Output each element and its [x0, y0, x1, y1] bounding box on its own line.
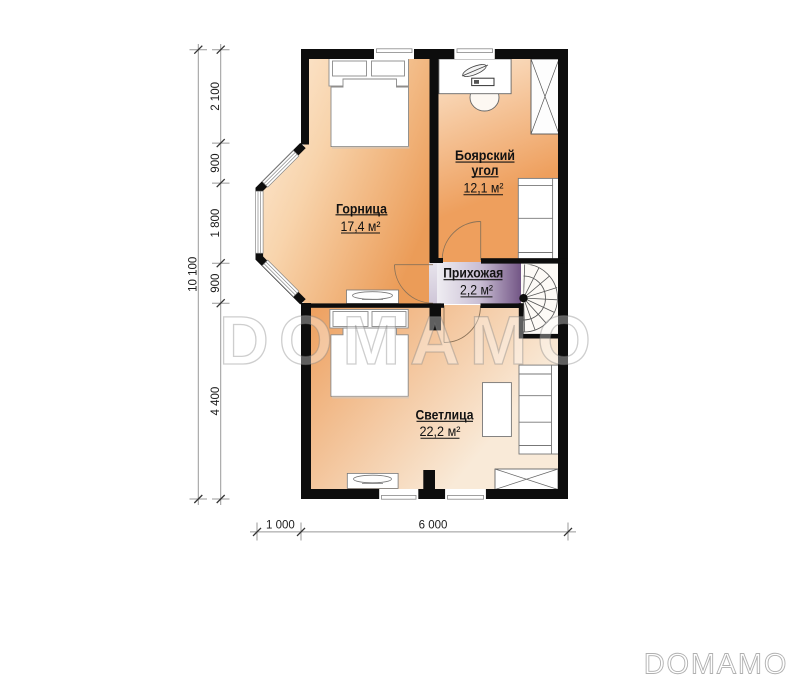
svg-text:12,1 м²: 12,1 м² [464, 181, 504, 196]
svg-text:22,2 м²: 22,2 м² [420, 424, 461, 439]
svg-text:900: 900 [210, 274, 222, 293]
svg-text:1 000: 1 000 [266, 520, 295, 532]
svg-text:2,2 м²: 2,2 м² [460, 282, 493, 297]
svg-text:4 400: 4 400 [210, 387, 222, 416]
svg-text:Горница: Горница [336, 200, 387, 216]
svg-text:1 800: 1 800 [210, 209, 222, 238]
svg-text:17,4 м²: 17,4 м² [341, 219, 381, 234]
svg-text:Светлица: Светлица [416, 406, 474, 422]
svg-text:Боярский: Боярский [455, 147, 515, 163]
svg-text:6 000: 6 000 [419, 520, 448, 532]
svg-text:10 100: 10 100 [188, 257, 200, 292]
svg-text:Прихожая: Прихожая [443, 264, 503, 280]
svg-text:2 100: 2 100 [210, 82, 222, 111]
svg-text:DOMAMO: DOMAMO [644, 649, 789, 679]
svg-text:DOMAMO: DOMAMO [219, 302, 601, 379]
svg-text:угол: угол [472, 162, 499, 178]
svg-text:900: 900 [210, 154, 222, 173]
